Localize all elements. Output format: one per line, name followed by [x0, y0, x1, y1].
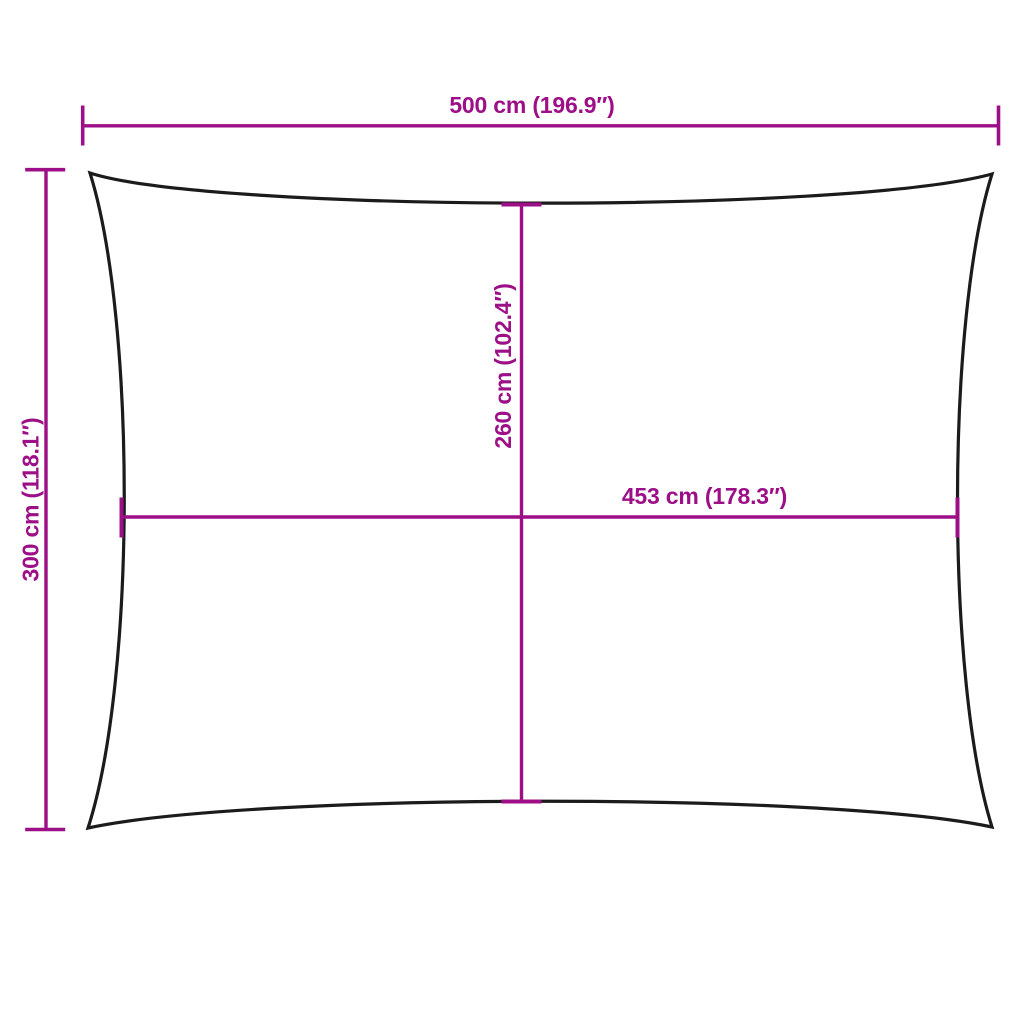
svg-text:453 cm (178.3″): 453 cm (178.3″)	[622, 483, 787, 509]
svg-text:300 cm (118.1″): 300 cm (118.1″)	[18, 417, 44, 581]
svg-text:260 cm (102.4″): 260 cm (102.4″)	[490, 283, 516, 448]
svg-text:500 cm (196.9″): 500 cm (196.9″)	[449, 92, 614, 118]
